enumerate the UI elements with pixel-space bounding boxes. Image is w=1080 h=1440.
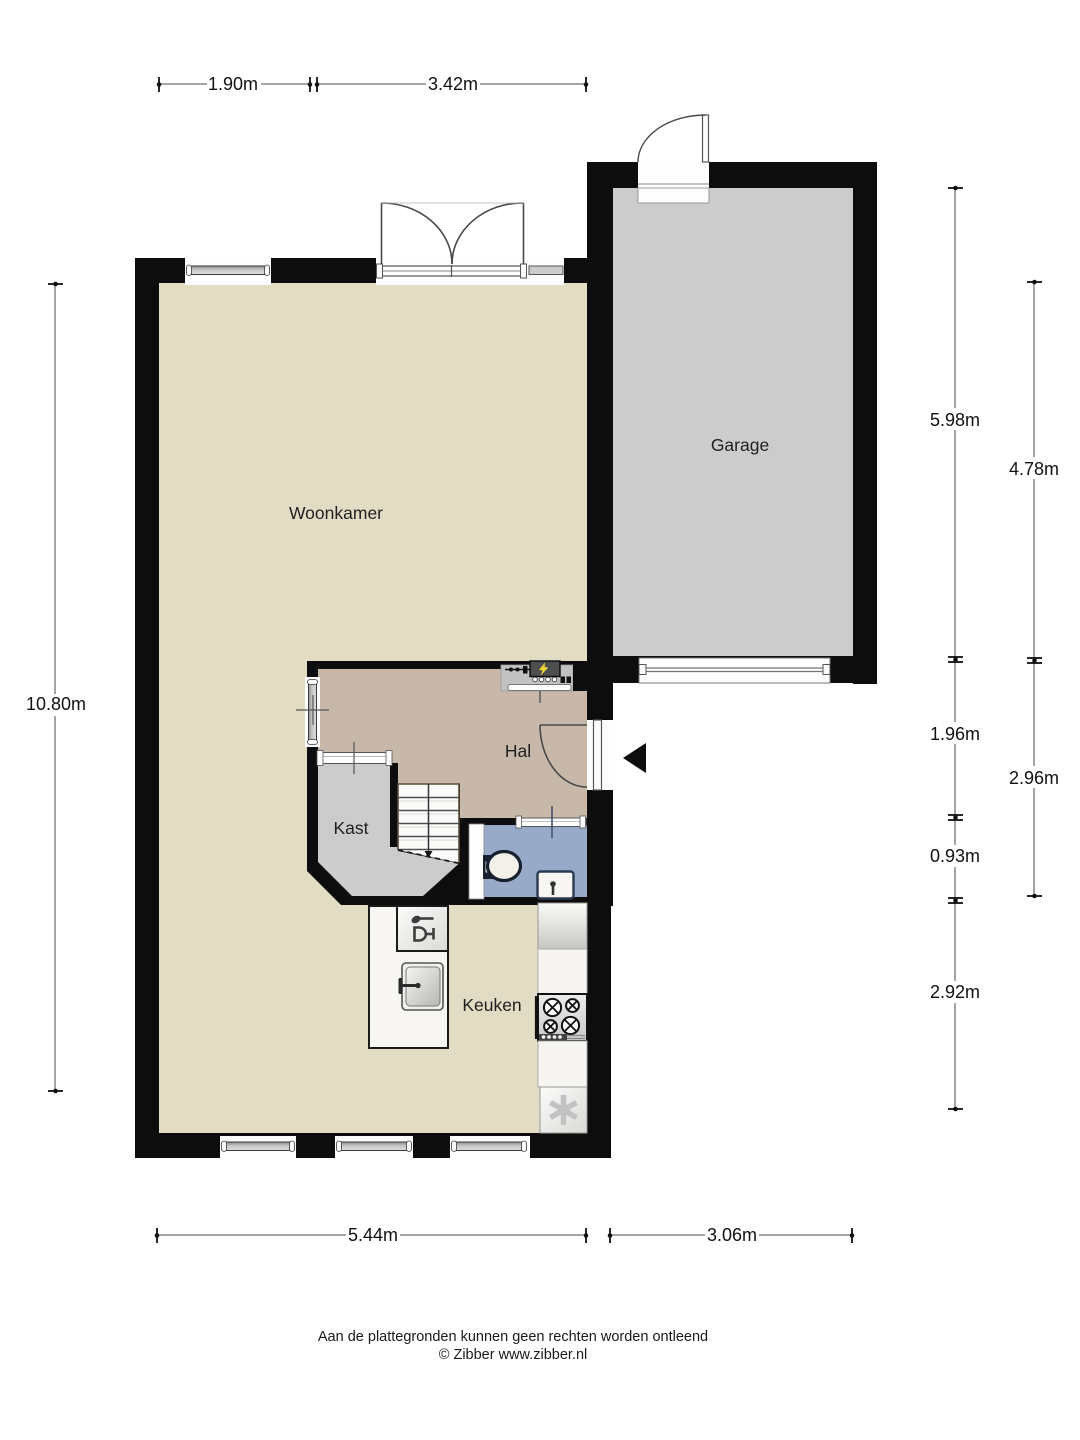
svg-text:2.92m: 2.92m — [930, 982, 980, 1002]
svg-text:Keuken: Keuken — [462, 995, 521, 1015]
svg-text:5.44m: 5.44m — [348, 1225, 398, 1245]
svg-text:3.06m: 3.06m — [707, 1225, 757, 1245]
svg-text:Woonkamer: Woonkamer — [289, 503, 383, 523]
svg-text:Garage: Garage — [711, 435, 769, 455]
svg-text:2.96m: 2.96m — [1009, 768, 1059, 788]
svg-text:3.42m: 3.42m — [428, 74, 478, 94]
svg-text:Hal: Hal — [505, 741, 531, 761]
svg-text:© Zibber www.zibber.nl: © Zibber www.zibber.nl — [439, 1347, 588, 1363]
svg-text:Aan de plattegronden kunnen ge: Aan de plattegronden kunnen geen rechten… — [318, 1329, 708, 1345]
svg-text:10.80m: 10.80m — [26, 694, 86, 714]
svg-text:Kast: Kast — [333, 818, 368, 838]
svg-text:5.98m: 5.98m — [930, 410, 980, 430]
svg-text:0.93m: 0.93m — [930, 846, 980, 866]
svg-text:1.96m: 1.96m — [930, 724, 980, 744]
svg-text:1.90m: 1.90m — [208, 74, 258, 94]
svg-text:4.78m: 4.78m — [1009, 459, 1059, 479]
